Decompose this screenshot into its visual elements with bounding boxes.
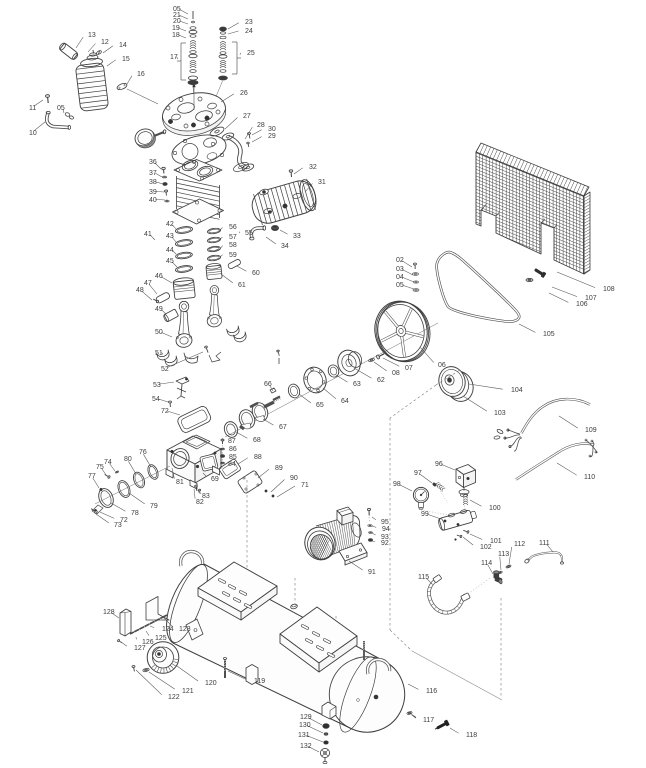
svg-text:98: 98 bbox=[393, 481, 401, 488]
svg-text:06: 06 bbox=[438, 362, 446, 369]
svg-text:61: 61 bbox=[238, 282, 246, 289]
svg-text:82: 82 bbox=[196, 499, 204, 506]
svg-text:111: 111 bbox=[539, 540, 550, 547]
svg-text:84: 84 bbox=[228, 461, 236, 468]
svg-text:25: 25 bbox=[247, 50, 255, 57]
svg-text:118: 118 bbox=[466, 732, 477, 739]
svg-text:05: 05 bbox=[396, 282, 404, 289]
svg-text:50: 50 bbox=[155, 329, 163, 336]
svg-text:43: 43 bbox=[166, 233, 174, 240]
svg-text:45: 45 bbox=[166, 258, 174, 265]
svg-text:89: 89 bbox=[275, 465, 283, 472]
svg-text:44: 44 bbox=[166, 247, 174, 254]
svg-text:88: 88 bbox=[254, 454, 262, 461]
svg-text:20: 20 bbox=[173, 18, 181, 25]
svg-text:19: 19 bbox=[172, 25, 180, 32]
svg-text:32: 32 bbox=[309, 164, 317, 171]
svg-text:85: 85 bbox=[229, 454, 237, 461]
svg-text:47: 47 bbox=[144, 280, 152, 287]
svg-text:33: 33 bbox=[293, 233, 301, 240]
svg-text:62: 62 bbox=[377, 377, 385, 384]
svg-text:128: 128 bbox=[103, 609, 115, 616]
svg-text:120: 120 bbox=[205, 680, 217, 687]
svg-text:131: 131 bbox=[298, 732, 310, 739]
svg-text:104: 104 bbox=[511, 387, 523, 394]
svg-text:99: 99 bbox=[421, 511, 429, 518]
svg-text:100: 100 bbox=[489, 505, 501, 512]
svg-text:13: 13 bbox=[88, 32, 96, 39]
svg-text:71: 71 bbox=[301, 482, 309, 489]
svg-text:114: 114 bbox=[481, 560, 492, 567]
svg-text:58: 58 bbox=[229, 242, 237, 249]
svg-text:75: 75 bbox=[96, 464, 104, 471]
svg-text:92: 92 bbox=[381, 540, 389, 547]
svg-text:115: 115 bbox=[418, 574, 429, 581]
svg-text:132: 132 bbox=[300, 743, 312, 750]
svg-text:56: 56 bbox=[229, 224, 237, 231]
svg-text:91: 91 bbox=[368, 569, 376, 576]
svg-text:96: 96 bbox=[435, 461, 443, 468]
svg-text:68: 68 bbox=[253, 437, 261, 444]
svg-text:42: 42 bbox=[166, 221, 174, 228]
svg-text:27: 27 bbox=[243, 113, 251, 120]
svg-text:87: 87 bbox=[228, 438, 236, 445]
svg-text:30: 30 bbox=[268, 126, 276, 133]
svg-text:109: 109 bbox=[585, 427, 597, 434]
svg-text:73: 73 bbox=[114, 522, 122, 529]
svg-text:40: 40 bbox=[149, 197, 157, 204]
svg-text:26: 26 bbox=[240, 90, 248, 97]
svg-text:15: 15 bbox=[122, 56, 130, 63]
svg-text:55: 55 bbox=[245, 230, 253, 237]
svg-text:113: 113 bbox=[498, 551, 509, 558]
svg-text:122: 122 bbox=[168, 694, 180, 701]
svg-text:65: 65 bbox=[316, 402, 324, 409]
svg-text:23: 23 bbox=[245, 19, 253, 26]
svg-text:36: 36 bbox=[149, 159, 157, 166]
svg-text:53: 53 bbox=[153, 382, 161, 389]
svg-text:101: 101 bbox=[490, 538, 502, 545]
svg-text:03: 03 bbox=[396, 266, 404, 273]
svg-text:125: 125 bbox=[155, 635, 167, 642]
svg-text:72: 72 bbox=[161, 408, 169, 415]
svg-text:04: 04 bbox=[396, 274, 404, 281]
svg-text:76: 76 bbox=[139, 449, 147, 456]
svg-text:54: 54 bbox=[152, 396, 160, 403]
svg-text:78: 78 bbox=[131, 510, 139, 517]
svg-text:34: 34 bbox=[281, 243, 289, 250]
svg-text:123: 123 bbox=[179, 626, 191, 633]
svg-text:08: 08 bbox=[392, 370, 400, 377]
svg-text:77: 77 bbox=[88, 473, 96, 480]
svg-text:95: 95 bbox=[381, 519, 389, 526]
svg-text:81: 81 bbox=[176, 479, 184, 486]
svg-text:38: 38 bbox=[149, 179, 157, 186]
svg-text:02: 02 bbox=[396, 257, 404, 264]
svg-text:52: 52 bbox=[161, 366, 169, 373]
svg-text:31: 31 bbox=[318, 179, 326, 186]
svg-text:117: 117 bbox=[423, 717, 434, 724]
svg-text:39: 39 bbox=[149, 189, 157, 196]
svg-text:74: 74 bbox=[104, 459, 112, 466]
svg-text:130: 130 bbox=[299, 722, 311, 729]
svg-text:66: 66 bbox=[264, 381, 272, 388]
svg-text:80: 80 bbox=[124, 456, 132, 463]
svg-text:108: 108 bbox=[603, 286, 615, 293]
svg-text:79: 79 bbox=[150, 503, 158, 510]
svg-text:67: 67 bbox=[279, 424, 287, 431]
svg-text:121: 121 bbox=[182, 688, 194, 695]
svg-text:110: 110 bbox=[584, 474, 595, 481]
svg-text:127: 127 bbox=[134, 645, 146, 652]
svg-text:05: 05 bbox=[57, 105, 65, 112]
svg-text:12: 12 bbox=[101, 39, 109, 46]
svg-text:48: 48 bbox=[136, 287, 144, 294]
svg-text:107: 107 bbox=[585, 295, 597, 302]
svg-text:11: 11 bbox=[29, 105, 36, 112]
svg-text:41: 41 bbox=[144, 231, 152, 238]
svg-text:106: 106 bbox=[576, 301, 588, 308]
svg-text:28: 28 bbox=[257, 122, 265, 129]
svg-text:29: 29 bbox=[268, 133, 276, 140]
svg-text:103: 103 bbox=[494, 410, 506, 417]
svg-text:69: 69 bbox=[211, 476, 219, 483]
svg-text:10: 10 bbox=[29, 130, 37, 137]
svg-text:59: 59 bbox=[229, 252, 237, 259]
svg-text:16: 16 bbox=[137, 71, 145, 78]
svg-text:102: 102 bbox=[480, 544, 492, 551]
svg-text:51: 51 bbox=[155, 350, 163, 357]
svg-text:14: 14 bbox=[119, 42, 127, 49]
svg-text:49: 49 bbox=[155, 306, 163, 313]
svg-text:112: 112 bbox=[514, 541, 525, 548]
svg-text:86: 86 bbox=[229, 446, 237, 453]
svg-text:63: 63 bbox=[353, 381, 361, 388]
svg-text:57: 57 bbox=[229, 234, 237, 241]
svg-text:07: 07 bbox=[405, 365, 413, 372]
svg-text:17: 17 bbox=[170, 54, 178, 61]
svg-text:64: 64 bbox=[341, 398, 349, 405]
svg-text:90: 90 bbox=[290, 475, 298, 482]
svg-text:124: 124 bbox=[162, 626, 174, 633]
svg-text:119: 119 bbox=[254, 678, 265, 685]
svg-text:97: 97 bbox=[414, 470, 422, 477]
svg-text:116: 116 bbox=[426, 688, 437, 695]
svg-text:46: 46 bbox=[155, 273, 163, 280]
svg-text:18: 18 bbox=[172, 32, 180, 39]
svg-text:24: 24 bbox=[245, 28, 253, 35]
svg-text:60: 60 bbox=[252, 270, 260, 277]
svg-text:94: 94 bbox=[382, 526, 390, 533]
svg-text:129: 129 bbox=[300, 714, 312, 721]
svg-text:37: 37 bbox=[149, 170, 157, 177]
svg-text:105: 105 bbox=[543, 331, 555, 338]
